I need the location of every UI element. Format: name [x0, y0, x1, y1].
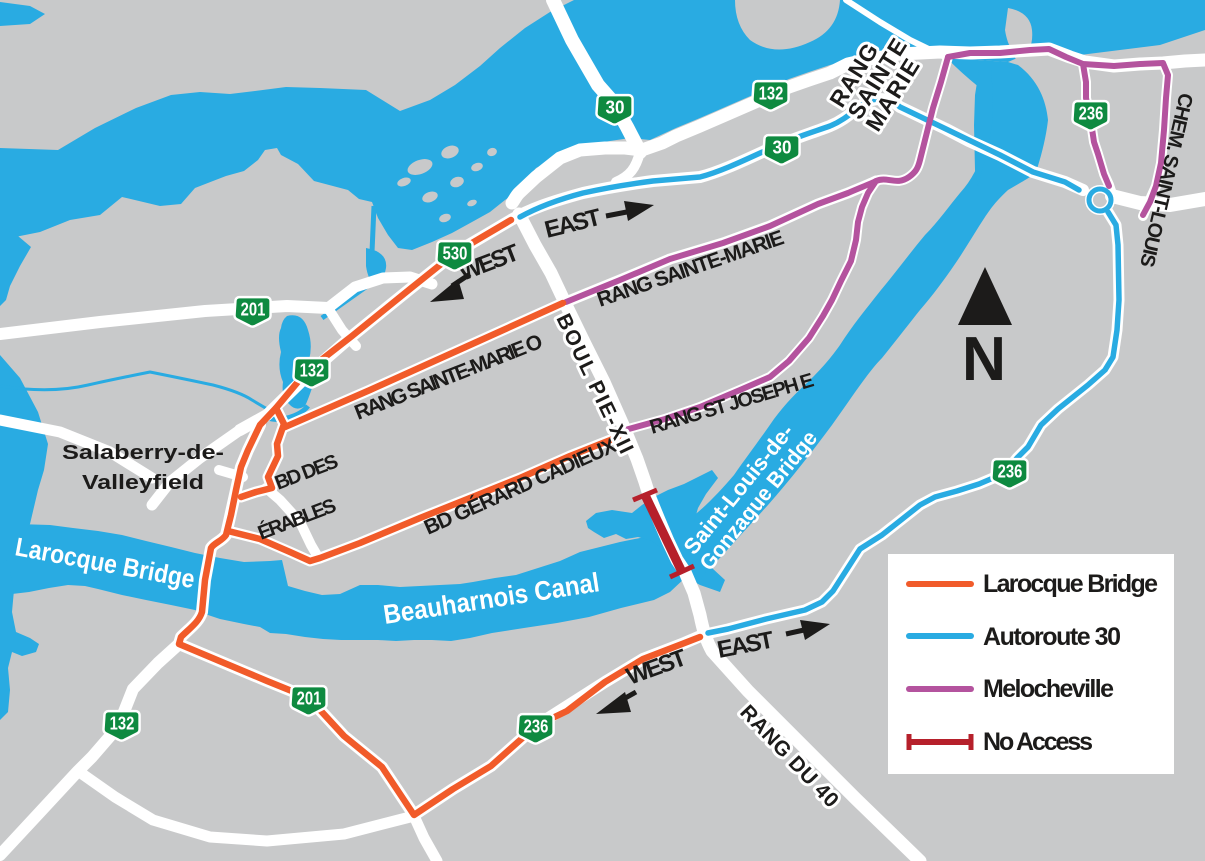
svg-text:201: 201 [241, 300, 266, 320]
svg-text:Salaberry-de-: Salaberry-de- [62, 442, 224, 464]
svg-text:530: 530 [443, 244, 468, 264]
svg-text:236: 236 [524, 717, 549, 737]
svg-text:Autoroute 30: Autoroute 30 [983, 623, 1121, 651]
svg-text:236: 236 [1079, 104, 1104, 124]
svg-text:30: 30 [606, 98, 625, 118]
svg-text:236: 236 [998, 462, 1023, 482]
svg-text:No Access: No Access [983, 728, 1093, 756]
svg-text:132: 132 [110, 714, 135, 734]
svg-text:132: 132 [759, 84, 784, 104]
svg-text:201: 201 [297, 689, 322, 709]
svg-text:Melocheville: Melocheville [983, 675, 1114, 703]
svg-text:132: 132 [300, 361, 325, 381]
svg-text:N: N [962, 325, 1006, 394]
svg-text:Larocque Bridge: Larocque Bridge [983, 570, 1158, 598]
svg-text:30: 30 [773, 138, 792, 158]
svg-text:Valleyfield: Valleyfield [82, 472, 204, 494]
